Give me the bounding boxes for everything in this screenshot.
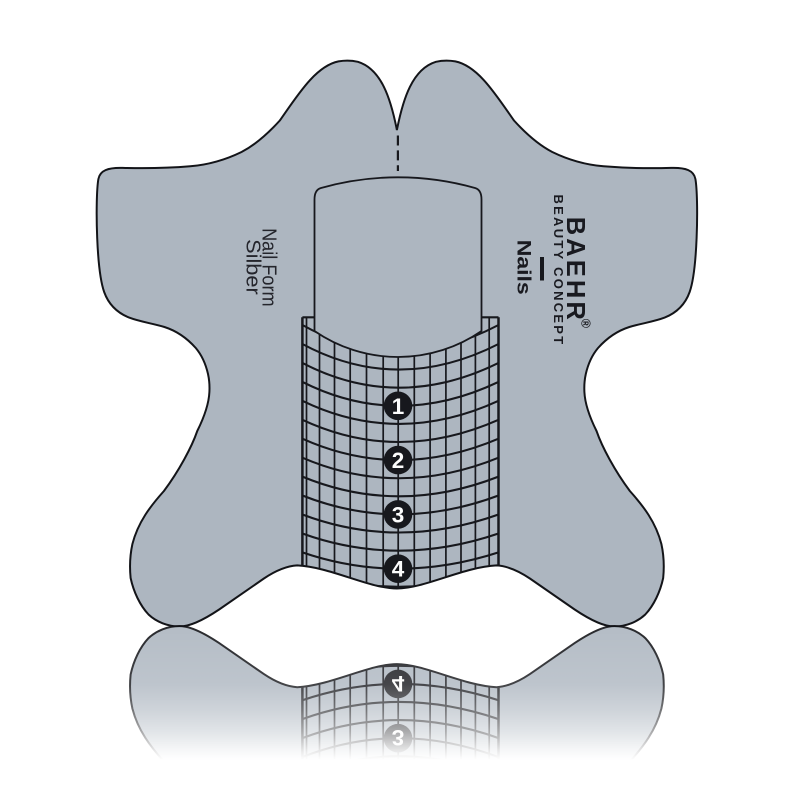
svg-text:®: ® [579,319,593,329]
svg-text:Silber: Silber [242,239,264,295]
svg-text:3: 3 [392,725,405,750]
svg-text:1: 1 [392,394,405,419]
svg-text:4: 4 [392,671,405,696]
svg-text:4: 4 [392,557,405,582]
svg-text:BEAUTY CONCEPT: BEAUTY CONCEPT [551,195,566,347]
svg-text:2: 2 [392,780,405,800]
svg-text:Nails: Nails [512,240,534,295]
svg-text:3: 3 [392,502,405,527]
svg-text:2: 2 [392,448,405,473]
